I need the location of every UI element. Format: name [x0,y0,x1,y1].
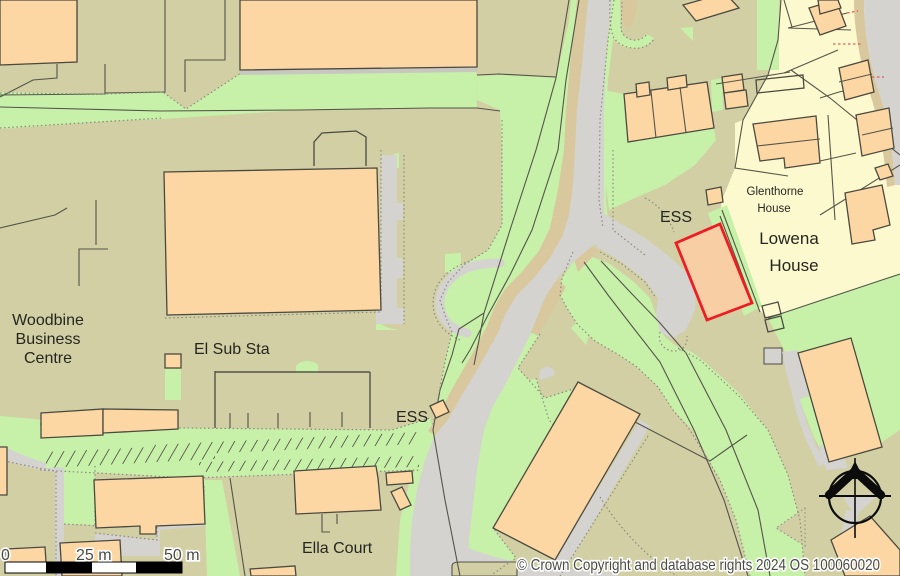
svg-text:Glenthorne: Glenthorne [747,186,804,198]
svg-text:0: 0 [1,547,10,564]
svg-text:ESS: ESS [396,409,428,426]
svg-text:House: House [757,203,790,215]
svg-text:Business: Business [16,331,81,348]
svg-text:Woodbine: Woodbine [12,312,84,329]
svg-text:Ella Court: Ella Court [302,540,373,557]
svg-text:25 m: 25 m [76,547,112,564]
svg-text:ESS: ESS [660,209,692,226]
svg-text:50 m: 50 m [164,547,200,564]
svg-text:House: House [769,256,818,275]
svg-text:© Crown Copyright and database: © Crown Copyright and database rights 20… [517,557,880,574]
svg-text:Lowena: Lowena [759,229,819,248]
svg-text:Centre: Centre [24,350,72,367]
svg-text:El Sub Sta: El Sub Sta [194,341,270,358]
